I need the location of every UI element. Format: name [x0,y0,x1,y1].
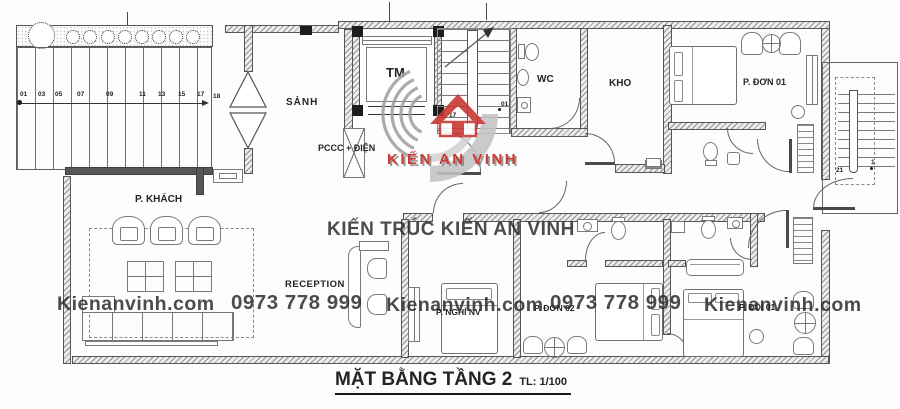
plant-icon [83,30,97,44]
sink-counter [577,219,598,232]
room-label-single-01: P. ĐƠN 01 [743,77,786,87]
step-number: 09 [106,91,113,98]
plant-icon [152,30,166,44]
armchair [150,216,183,245]
stair-number: 1 [871,159,875,166]
logo-text: KIẾN AN VINH [387,151,518,168]
door-arc [813,178,853,208]
reception-desk-return [359,241,389,251]
sink-icon [671,221,685,233]
toilet-tank [518,44,525,59]
shower-tray [686,259,744,276]
coffee-table [127,261,164,292]
wall [605,260,663,267]
armchair [567,336,587,354]
desk-chair [367,294,387,315]
armchair [741,32,763,55]
wall [244,25,253,72]
drawing-title: MẶT BẰNG TẦNG 2 TL: 1/100 [335,369,571,395]
step-number: 03 [38,91,45,98]
title-scale: TL: 1/100 [519,376,567,388]
armchair-seat [196,227,214,241]
room-label-hall: SẢNH [286,97,318,108]
entry-double-door-icon [225,70,271,150]
plant-icon [118,30,132,44]
wall [567,260,587,267]
floor-plan: 01 03 05 07 09 11 13 15 17 18 [0,0,900,409]
step-number: 15 [178,91,185,98]
watermark-website: Kienanvinh.com [704,294,862,317]
round-table [544,337,565,358]
blanket-line [692,47,693,104]
toilet-icon [525,43,539,61]
wall [580,28,588,134]
plant-icon [28,22,55,49]
watermark-website: Kienanvinh.com [57,293,215,316]
step-number: 05 [55,91,62,98]
closet-hangers [793,217,813,264]
armchair [779,32,801,55]
door-arc [727,128,753,154]
side-table [749,329,764,344]
step-number: 18 [213,93,220,100]
desk-chair [367,258,387,279]
wall [63,176,71,364]
step-number: 07 [77,91,84,98]
door-arc [433,183,463,213]
pillow [651,314,660,336]
door-arc [757,139,789,172]
armchair [188,216,221,245]
dimension-line [127,12,128,26]
column [300,26,312,35]
door-leaf [786,210,789,248]
step-number: 01 [20,91,27,98]
plant-icon [101,30,115,44]
watermark-phone: 0973 778 999 [550,291,681,315]
door-arc [585,232,605,260]
step-number: 13 [158,91,165,98]
blanket-line [684,319,743,320]
armchair [112,216,145,245]
round-table [762,34,781,53]
door-arc [539,181,567,213]
armchair [523,336,543,354]
pillow [674,52,683,76]
room-label-reception: RECEPTION [285,279,345,290]
watermark-brand: KIẾN TRÚC KIẾN AN VINH [327,219,575,241]
coffee-table [175,261,212,292]
wall [244,148,253,174]
wall [196,167,204,195]
sink-counter [727,217,743,229]
toilet-icon [611,221,626,240]
armchair-seat [120,227,138,241]
door-arc [585,133,615,163]
sink-icon [727,152,740,165]
wall [225,25,339,33]
step-number: 11 [139,91,146,98]
doormat-inner [219,173,237,179]
stair-dot [870,167,873,170]
stair-start-dot [17,100,22,105]
watermark-website: Kienanvinh.com [386,294,544,317]
plant-icon [186,30,200,44]
armchair [793,337,814,355]
stair-arrow-icon [202,100,209,106]
shelf [646,158,661,167]
title-text: MẶT BẰNG TẦNG 2 [335,369,512,391]
toilet-tank [705,160,717,166]
watermark-phone: 0973 778 999 [231,291,362,315]
sink-icon [732,220,740,228]
wardrobe [806,55,818,105]
toilet-icon [703,142,718,161]
sofa [82,312,234,341]
room-label-living: P. KHÁCH [135,194,182,205]
room-label-storage: KHO [609,78,631,89]
plant-icon [135,30,149,44]
wall [663,219,671,335]
wall [668,260,686,267]
dimension-line [389,2,390,22]
wall [72,356,829,364]
door-leaf [789,139,792,173]
stair-number: 21 [836,167,843,174]
elevator-door [362,36,432,45]
reception-desk [348,246,361,328]
dimension-line [486,3,487,20]
plant-icon [169,30,183,44]
sink-icon [791,105,805,119]
wall [65,167,213,175]
right-stair-treads [838,94,895,171]
stair-rail [849,90,858,173]
stair-direction-line [20,103,203,104]
sink-icon [583,222,592,231]
pillow [674,80,683,102]
armchair-seat [158,227,176,241]
step-number: 17 [197,91,204,98]
plant-icon [66,30,80,44]
bed [669,46,737,105]
doormat [213,169,243,183]
sofa-base [85,341,218,346]
closet-hangers [797,124,814,173]
tray-line [690,264,740,265]
exterior-stair-treads [16,47,212,170]
toilet-icon [701,220,716,239]
